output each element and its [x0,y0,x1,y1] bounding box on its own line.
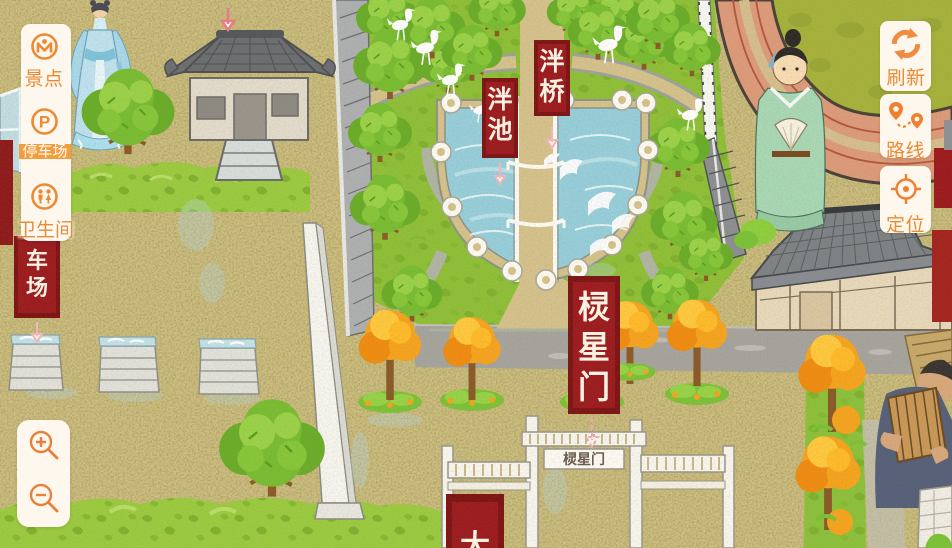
svg-text:P: P [39,113,50,132]
